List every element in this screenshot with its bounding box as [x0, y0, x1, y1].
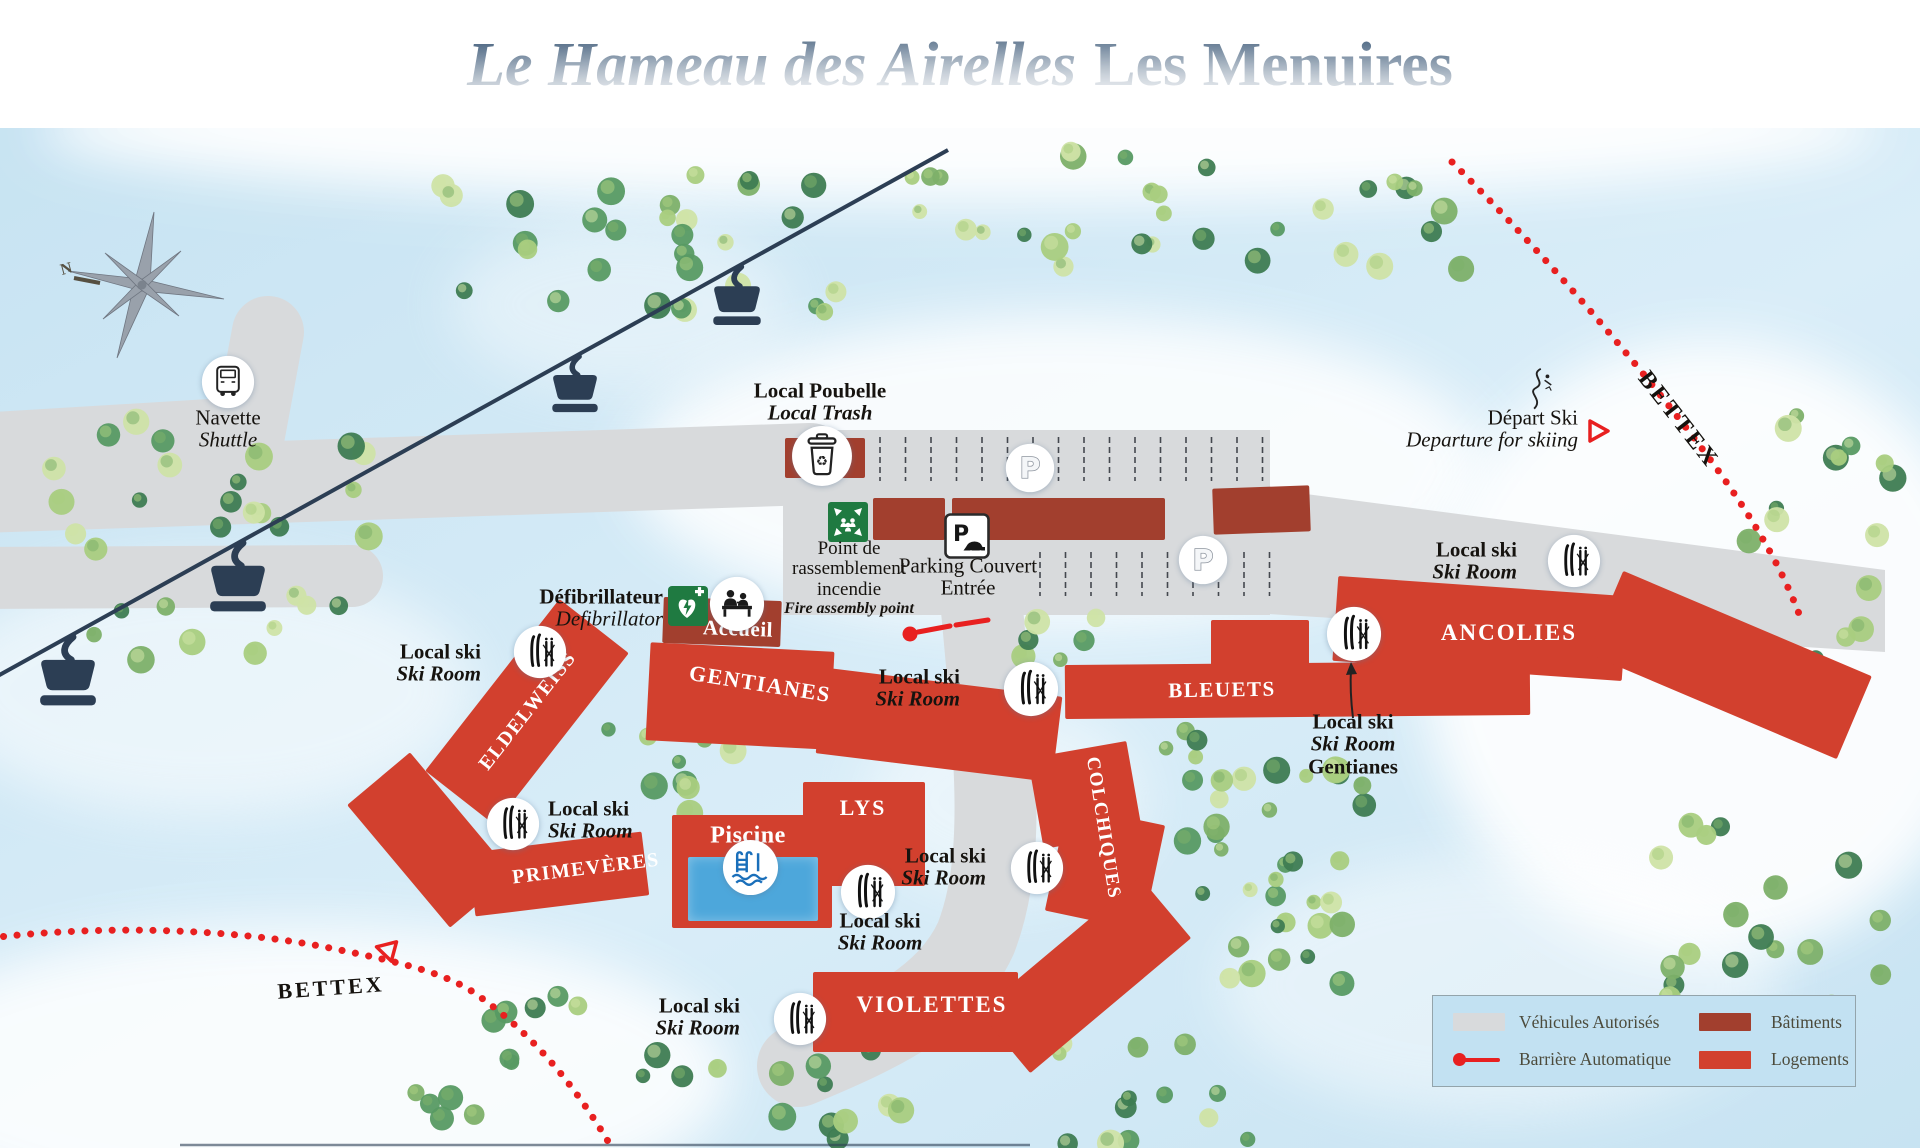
building-batiment-2 — [873, 498, 945, 540]
building-label-ancolies: ANCOLIES — [1441, 620, 1577, 646]
ski-room-gentianes-label: Local skiSki RoomGentianes — [1308, 710, 1398, 777]
ski-room-bleuets-label: Local skiSki Room — [875, 666, 960, 711]
ski-room-eldelweiss-label: Local skiSki Room — [396, 641, 481, 686]
local-poubelle-icon: ♻ — [791, 425, 853, 487]
ski-room-bleuets-label-line: Local ski — [875, 666, 960, 688]
local-poubelle-label-line: Local Poubelle — [754, 380, 886, 402]
building-label-bleuets: BLEUETS — [1168, 677, 1276, 704]
building-ancolies-part-1 — [1588, 571, 1872, 759]
ski-room-gentianes-icon — [1326, 606, 1382, 662]
parking-couvert-label-line: Parking Couvert — [899, 555, 1037, 577]
building-batiment-4 — [1212, 485, 1311, 534]
ski-room-eldelweiss-icon — [513, 625, 567, 679]
defibrillateur-icon — [667, 585, 709, 627]
svg-text:P: P — [953, 522, 969, 547]
local-poubelle-label-line: Local Trash — [754, 402, 886, 424]
local-poubelle-label: Local PoubelleLocal Trash — [754, 380, 886, 425]
ski-room-violettes-label-line: Local ski — [655, 995, 740, 1017]
point-rassemblement-incendie-label-line: rassemblement — [784, 559, 914, 579]
legend-swatch-vehicules — [1453, 1013, 1505, 1031]
ski-room-colchiques-label-line: Ski Room — [901, 867, 986, 889]
ski-room-violettes-label: Local skiSki Room — [655, 995, 740, 1040]
ski-room-eldelweiss-label-line: Local ski — [396, 641, 481, 663]
legend-item-batiments-label: Bâtiments — [1771, 1012, 1849, 1033]
ski-room-ancolies-label-line: Local ski — [1432, 539, 1517, 561]
defibrillateur-label-line: Défibrillateur — [539, 586, 663, 608]
ski-room-colchiques-label-line: Local ski — [901, 845, 986, 867]
ski-room-colchiques-label: Local skiSki Room — [901, 845, 986, 890]
ski-room-colchiques-icon — [1010, 841, 1064, 895]
map-overlay: ELDELWEISSGENTIANESAccueilANCOLIESBLEUET… — [0, 0, 1920, 1148]
navette-label-line: Navette — [195, 407, 260, 429]
parking-p-1-icon: P — [1005, 443, 1055, 493]
ski-room-primeveres-label-line: Ski Room — [548, 820, 633, 842]
parking-couvert-label-line: Entrée — [899, 577, 1037, 599]
defibrillateur-label: DéfibrillateurDefibrillator — [539, 586, 663, 631]
legend-item-vehicules-label: Véhicules Autorisés — [1519, 1012, 1699, 1033]
parking-couvert-icon: P — [944, 513, 990, 559]
accueil-reception-icon — [709, 576, 765, 632]
ski-room-ancolies-label-line: Ski Room — [1432, 561, 1517, 583]
ski-room-gentianes-label-line: Gentianes — [1308, 755, 1398, 777]
point-rassemblement-incendie-icon — [827, 501, 869, 543]
svg-text:♻: ♻ — [816, 454, 828, 469]
depart-ski-label: Départ SkiDeparture for skiing — [1406, 407, 1578, 452]
legend-swatch-batiments — [1699, 1013, 1751, 1031]
depart-ski-label-line: Départ Ski — [1406, 407, 1578, 429]
ski-room-bleuets-label-line: Ski Room — [875, 688, 960, 710]
legend-swatch-barriere — [1453, 1053, 1519, 1066]
point-rassemblement-incendie-label: Point derassemblementincendieFire assemb… — [784, 539, 914, 617]
ski-room-ancolies-icon — [1547, 534, 1601, 588]
ski-room-eldelweiss-label-line: Ski Room — [396, 663, 481, 685]
navette-icon — [201, 355, 255, 409]
parking-p-2-icon: P — [1178, 535, 1228, 585]
label-bettex-top: BETTEX — [1632, 366, 1724, 474]
ski-room-primeveres-label: Local skiSki Room — [548, 798, 633, 843]
building-label-lys: LYS — [840, 795, 887, 821]
building-label-violettes: VIOLETTES — [857, 992, 1008, 1018]
legend-swatch-logements — [1699, 1051, 1751, 1069]
navette-label-line: Shuttle — [195, 429, 260, 451]
svg-text:P: P — [1193, 544, 1214, 577]
ski-room-violettes-icon — [773, 992, 827, 1046]
point-rassemblement-incendie-label-line: incendie — [784, 580, 914, 600]
ski-room-gentianes-label-line: Ski Room — [1308, 733, 1398, 755]
barrier-line-icon — [1464, 1058, 1500, 1063]
ski-room-lys-label-line: Ski Room — [838, 932, 923, 954]
svg-text:P: P — [1020, 452, 1041, 485]
label-bettex-bottom: BETTEX — [277, 971, 386, 1004]
legend-item-logements-label: Logements — [1771, 1049, 1849, 1070]
resort-map-poster: Le Hameau des AirellesLes Menuires N ELD… — [0, 0, 1920, 1148]
navette-label: NavetteShuttle — [195, 407, 260, 452]
point-rassemblement-incendie-label-line: Point de — [784, 539, 914, 559]
ski-room-lys-label-line: Local ski — [838, 910, 923, 932]
ski-room-lys-label: Local skiSki Room — [838, 910, 923, 955]
ski-room-primeveres-label-line: Local ski — [548, 798, 633, 820]
ski-room-gentianes-label-line: Local ski — [1308, 710, 1398, 732]
depart-ski-label-line: Departure for skiing — [1406, 429, 1578, 451]
point-rassemblement-incendie-label-line: Fire assembly point — [784, 600, 914, 617]
legend: Véhicules Autorisés Bâtiments Barrière A… — [1432, 995, 1856, 1087]
legend-item-barriere-label: Barrière Automatique — [1519, 1049, 1699, 1070]
parking-couvert-label: Parking CouvertEntrée — [899, 555, 1037, 600]
ski-room-ancolies-label: Local skiSki Room — [1432, 539, 1517, 584]
ski-room-primeveres-icon — [486, 797, 540, 851]
ski-room-violettes-label-line: Ski Room — [655, 1017, 740, 1039]
ski-room-bleuets-icon — [1003, 661, 1059, 717]
piscine-pool-icon — [722, 839, 779, 896]
